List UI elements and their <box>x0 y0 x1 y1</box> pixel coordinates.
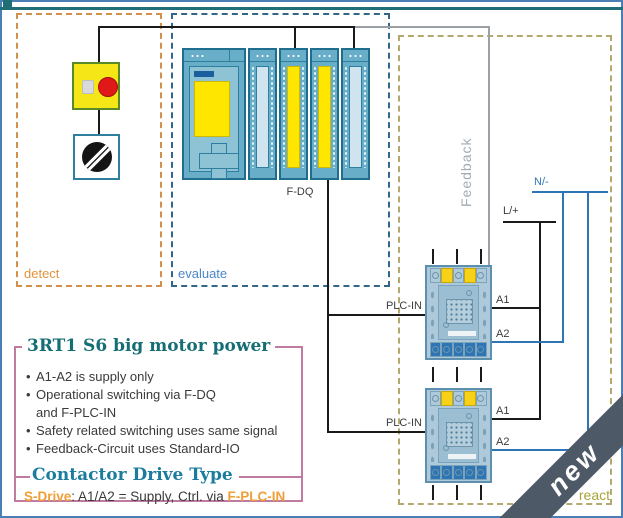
plc-in-label-top: PLC-IN <box>366 300 422 312</box>
bullet-text: A1-A2 is supply only <box>36 368 154 386</box>
info-box-title: 3RT1 S6 big motor power <box>22 336 275 356</box>
bullet-text: and F-PLC-IN <box>36 404 116 422</box>
module-front-plate <box>349 66 362 168</box>
info-box: 3RT1 S6 big motor power • A1-A2 is suppl… <box>14 346 303 502</box>
contactor-label-plate <box>446 299 473 324</box>
evaluate-zone-label: evaluate <box>178 266 227 281</box>
wire-a1-top-contactor <box>492 307 541 309</box>
wire-estop-drop <box>98 26 100 62</box>
wire-fdq-vertical <box>327 180 329 433</box>
corner-chip <box>3 0 12 7</box>
detect-zone-label: detect <box>24 266 59 281</box>
stub <box>480 485 482 500</box>
a1-label-top: A1 <box>496 294 509 306</box>
module-front-plate <box>287 66 300 168</box>
wire-plcin-bottom <box>327 431 427 433</box>
plc-assembly <box>182 48 372 180</box>
contactor-bottom <box>425 388 492 483</box>
wire-plcin-top <box>327 314 427 316</box>
wire-feedback-horizontal <box>355 26 490 28</box>
stub <box>456 367 458 382</box>
bullet-text: Feedback-Circuit uses Standard-IO <box>36 440 240 458</box>
top-rule <box>0 7 623 10</box>
bullet-item: • A1-A2 is supply only <box>24 368 297 386</box>
led-dots <box>286 54 301 58</box>
wire-nminus-horizontal <box>532 191 608 193</box>
feedback-label: Feedback <box>458 103 474 207</box>
bullet-text: Safety related switching uses same signa… <box>36 422 277 440</box>
led-dots <box>348 54 363 58</box>
led-dots <box>255 54 270 58</box>
wire-lplus-vertical <box>539 221 541 420</box>
drive-term: S-Drive <box>24 489 71 504</box>
a2-label-top: A2 <box>496 328 509 340</box>
estop-pad <box>82 80 94 94</box>
io-module-1 <box>248 48 277 180</box>
terminal-yellow <box>441 268 452 283</box>
wire-feedback-vertical <box>488 26 490 266</box>
led-dots <box>317 54 332 58</box>
led-dots <box>190 54 205 58</box>
terminal-yellow <box>464 268 475 283</box>
a1-label-bottom: A1 <box>496 405 509 417</box>
stub <box>480 367 482 382</box>
drive-rest: : A1/A2 = Supply, Ctrl. via <box>71 489 227 504</box>
bullet-item: • Feedback-Circuit uses Standard-IO <box>24 440 297 458</box>
module-front-plate <box>256 66 269 168</box>
rotary-switch-icon <box>73 134 120 180</box>
estop-red-button <box>98 77 118 97</box>
bullet-item-continuation: and F-PLC-IN <box>24 404 297 422</box>
wire-nminus-drop1 <box>562 191 564 343</box>
stub <box>432 485 434 500</box>
safety-circuit-diagram: detect evaluate react PLC-IN PLC-IN L/+ … <box>0 0 623 518</box>
cpu-front-panel <box>189 66 239 172</box>
module-front-plate <box>318 66 331 168</box>
io-module-3-fdq <box>310 48 339 180</box>
stub <box>480 249 482 264</box>
contactor-face <box>438 408 479 463</box>
stub <box>432 367 434 382</box>
cpu-led-bar <box>194 71 214 77</box>
wire-a2-top-contactor <box>492 341 564 343</box>
wire-a1-bottom-contactor <box>492 418 541 420</box>
supply-minus-label: N/- <box>534 176 549 188</box>
bullet-item: • Operational switching via F-DQ <box>24 386 297 404</box>
wire-estop-to-switch <box>98 110 100 136</box>
a2-label-bottom: A2 <box>496 436 509 448</box>
stub <box>432 249 434 264</box>
emergency-stop-icon <box>72 62 120 110</box>
io-module-4 <box>341 48 370 180</box>
drive-highlight: F-PLC-IN <box>227 489 285 504</box>
terminal-yellow <box>441 391 452 406</box>
stub <box>456 485 458 500</box>
contactor-face <box>438 285 479 340</box>
section-title: Contactor Drive Type <box>30 465 239 485</box>
supply-plus-label: L/+ <box>503 205 519 217</box>
drive-type-line: S-Drive: A1/A2 = Supply, Ctrl. via F-PLC… <box>24 489 297 504</box>
stub <box>456 249 458 264</box>
wire-top-horizontal <box>98 26 355 28</box>
plc-in-label-bottom: PLC-IN <box>366 417 422 429</box>
bullet-text: Operational switching via F-DQ <box>36 386 216 404</box>
io-module-2 <box>279 48 308 180</box>
contactor-label-plate <box>446 422 473 447</box>
terminal-yellow <box>464 391 475 406</box>
wire-nminus-drop2 <box>587 191 589 451</box>
fdq-label: F-DQ <box>278 186 322 198</box>
wire-lplus-horizontal <box>503 221 556 223</box>
cpu-display <box>194 81 230 137</box>
plc-cpu-module <box>182 48 246 180</box>
bullet-item: • Safety related switching uses same sig… <box>24 422 297 440</box>
rotary-knob <box>82 142 112 172</box>
contactor-top <box>425 265 492 360</box>
